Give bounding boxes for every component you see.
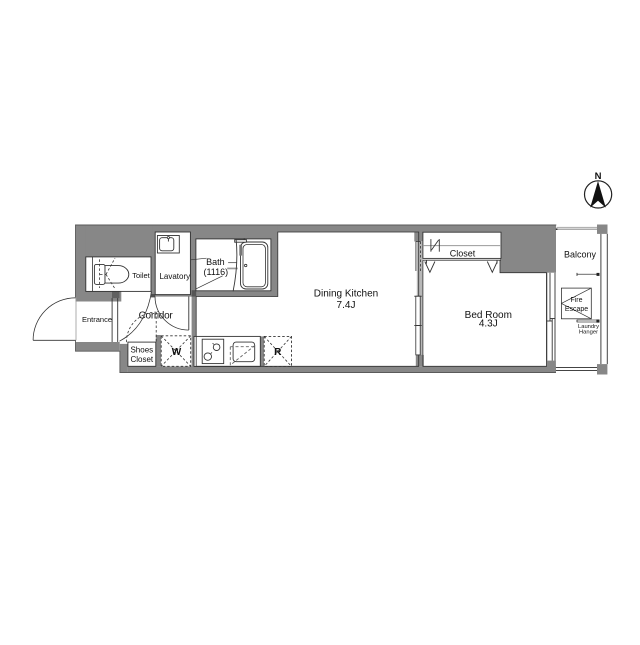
svg-text:Escape: Escape: [565, 306, 588, 313]
svg-text:Lavatory: Lavatory: [159, 272, 190, 281]
svg-text:Dining Kitchen: Dining Kitchen: [314, 289, 378, 300]
svg-text:4.3J: 4.3J: [479, 319, 498, 330]
svg-text:(1116): (1116): [203, 267, 228, 277]
svg-text:Entrance: Entrance: [82, 315, 112, 324]
svg-text:7.4J: 7.4J: [337, 300, 356, 311]
svg-text:Bath: Bath: [206, 257, 225, 267]
svg-text:Fire: Fire: [570, 297, 582, 304]
svg-text:Closet: Closet: [130, 355, 153, 364]
svg-text:W: W: [172, 347, 182, 358]
svg-text:Shoes: Shoes: [130, 346, 153, 355]
svg-text:R: R: [274, 347, 282, 358]
svg-text:Toilet: Toilet: [132, 271, 150, 280]
svg-text:Closet: Closet: [450, 248, 476, 258]
svg-text:Hanger: Hanger: [579, 330, 598, 336]
svg-text:Balcony: Balcony: [564, 250, 597, 260]
svg-text:N: N: [595, 171, 602, 182]
